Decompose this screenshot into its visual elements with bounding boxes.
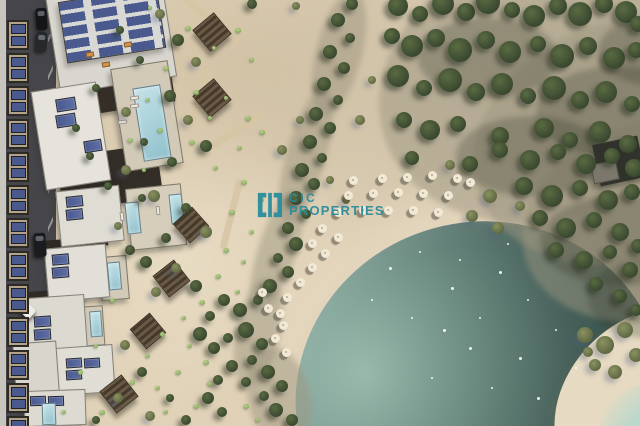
umbrella [279,321,288,330]
tree [286,414,298,426]
tree [556,218,576,238]
sparkle [479,317,481,319]
path [207,112,263,151]
tree [121,107,131,117]
tree [181,415,191,425]
tree [420,120,440,140]
tree [116,26,124,34]
tree [200,140,212,152]
aerial-resort-render: CIC PROPERTIES [0,0,640,426]
umbrella [334,233,343,242]
shrub [128,138,133,143]
shrub [260,130,265,135]
tree [625,159,640,177]
shrub [200,300,205,305]
panel [34,328,52,340]
tree [541,185,563,207]
shrub [212,46,216,50]
tree [292,2,300,10]
umbrella [321,249,330,258]
tree [164,90,176,102]
tree [140,256,152,268]
umbrella [419,189,428,198]
tree [276,380,288,392]
tree [86,152,94,160]
shrub [176,370,181,375]
tree [113,393,123,403]
tree [589,121,611,143]
sparkle [431,377,433,379]
thunit [7,383,29,413]
thunit [7,53,29,83]
tree [438,68,462,92]
shrub [216,274,221,279]
shrub [130,380,135,385]
tree [387,65,409,87]
thunit [7,185,29,215]
tree [483,189,497,203]
umbrella [384,206,393,215]
tree [586,212,602,228]
shrub [100,410,105,415]
tree [303,135,317,149]
shrub [146,354,150,358]
umbrella [271,334,280,343]
tree [598,190,618,210]
umbrella [466,178,475,187]
tree [491,73,513,95]
tree [140,138,148,146]
tree [523,5,545,27]
tree [92,84,100,92]
shrub [204,360,209,365]
car [35,32,47,53]
tree [253,295,263,305]
tree [583,347,593,357]
tree [289,237,303,251]
tree [273,253,283,263]
tree [137,367,147,377]
tree [448,38,472,62]
tree [629,348,640,362]
thunit [7,86,29,116]
sparkle [469,347,472,350]
tree [191,57,201,67]
tree [630,16,640,32]
tree [457,3,475,21]
thunit [7,119,29,149]
thunit [7,416,29,426]
tree [295,163,309,177]
sparkle [575,367,577,369]
tree [145,411,155,421]
tree [208,342,220,354]
panel [52,266,70,278]
tree [450,116,466,132]
shrub [214,166,218,170]
tree [405,151,419,165]
sparkle [499,271,502,274]
shrub [146,98,150,102]
tree [467,83,485,101]
sparkle [537,397,540,400]
shrub [256,418,260,422]
umbrella [308,239,317,248]
watermark: CIC PROPERTIES [256,191,385,219]
umbrella [403,173,412,182]
shrub [208,382,212,386]
tree [151,287,161,297]
tree [550,144,566,160]
tree [401,35,423,57]
umbrella [282,348,291,357]
umbrella [453,174,462,183]
tree [499,41,521,63]
tree [241,377,251,387]
tree [445,160,455,170]
shrub [94,344,98,348]
shrub [78,370,83,375]
tree [477,31,495,49]
tree [515,177,533,195]
tree [466,210,478,222]
tree [277,145,287,155]
tree [138,194,146,202]
tree [596,336,614,354]
tree [193,327,207,341]
pool [42,403,57,425]
tree [136,56,144,64]
shrub [186,26,191,31]
tree [520,150,540,170]
thunit [7,251,29,281]
tree [223,333,233,343]
umbrella [264,304,273,313]
tree [532,210,548,226]
tree [324,122,336,134]
shrub [156,386,160,390]
tree [576,154,596,174]
tree [604,148,620,164]
tree [562,132,578,148]
shrub [238,146,242,150]
tree [238,322,254,338]
tree [323,45,337,59]
tree [575,251,593,269]
panel [65,208,83,221]
shrub [242,180,247,185]
shrub [250,230,254,234]
tree [282,266,294,278]
tree [388,0,408,16]
tree [595,81,617,103]
panel [52,253,70,265]
sparkle [443,329,446,332]
sparkle [411,317,413,319]
tree [611,223,629,241]
sparkle [507,243,509,245]
shrub [224,96,228,100]
umbrella [283,293,292,302]
tree [384,28,400,44]
tree [355,115,365,125]
tree [577,327,593,343]
tree [259,391,269,401]
tree [200,226,212,238]
tree [218,294,230,306]
shrub [250,58,254,62]
tree [548,242,564,258]
umbrella [434,208,443,217]
tree [617,322,633,338]
thunit [7,284,29,314]
tree [92,416,100,424]
sparkle [389,267,392,270]
tree [171,263,181,273]
thunit [7,317,29,347]
tree [571,91,589,109]
umbrella [409,206,418,215]
shrub [188,344,192,348]
tree [256,338,268,350]
tree [308,178,320,190]
shrub [110,298,115,303]
tree [492,142,508,158]
sparkle [451,287,454,290]
tree [368,76,376,84]
sparkle [555,329,557,331]
thunit [7,350,29,380]
tree [181,203,191,213]
tree [396,112,412,128]
shrub [148,6,152,10]
shrub [224,248,229,253]
thunit [7,20,29,50]
umbrella [394,188,403,197]
umbrella [308,263,317,272]
sparkle [527,299,529,301]
sparkle [459,259,461,261]
tree [338,62,350,74]
panel [84,357,101,368]
tree [492,222,504,234]
thunit [7,152,29,182]
tree [104,182,112,190]
shrub [62,410,66,414]
tree [309,107,323,121]
umbrella [318,224,327,233]
tree [572,180,588,196]
tree [317,153,327,163]
tree [608,365,622,379]
tree [121,165,131,175]
tree [326,176,334,184]
wl [120,212,125,221]
tree [296,116,304,124]
tree [282,222,294,234]
car [35,8,48,31]
tree [520,88,536,104]
tree [190,280,202,292]
tree [125,245,135,255]
tree [172,34,184,46]
tree [589,277,603,291]
shrub [242,260,246,264]
tree [622,262,638,278]
tree [155,9,165,19]
tree [412,6,428,22]
shrub [164,66,169,71]
panel [65,195,83,208]
shrub [182,316,186,320]
tree [624,96,640,112]
tree [72,124,80,132]
watermark-line2: PROPERTIES [289,204,385,218]
umbrella [428,171,437,180]
shrub [164,410,168,414]
shrub [158,128,163,133]
tree [427,29,445,47]
shrub [190,140,195,145]
umbrella [378,174,387,183]
shrub [160,332,165,337]
shrub [194,404,199,409]
pool [107,261,122,290]
tree [217,407,227,417]
tree [579,37,597,55]
umbrella [276,309,285,318]
tree [247,355,257,365]
shrub [208,116,212,120]
sparkle [371,299,373,301]
tree [619,135,637,153]
tree [331,13,345,27]
tree [613,289,627,303]
tree [183,115,193,125]
tree [269,403,283,417]
tree [213,375,223,385]
tree [628,42,640,58]
shrub [194,90,199,95]
shrub [142,168,146,172]
sparkle [491,387,493,389]
tree [167,157,177,167]
umbrella [349,176,358,185]
tree [462,156,478,172]
tree [317,77,331,91]
shrub [236,28,241,33]
tree [161,233,171,243]
pool [89,311,103,338]
tree [226,360,238,372]
tree [603,47,625,69]
shrub [244,404,249,409]
tree [416,80,432,96]
tree [603,245,617,259]
panel [66,357,83,368]
tree [148,190,160,202]
watermark-text: CIC PROPERTIES [289,192,385,218]
panel [34,315,52,327]
tree [333,95,343,105]
thunit [7,218,29,248]
tree [202,392,214,404]
shrub [236,290,240,294]
tree [120,340,130,350]
pergola [130,313,167,350]
shrub [246,116,251,121]
tree [515,201,525,211]
wl [156,206,161,215]
tree [233,303,247,317]
tree [345,33,355,43]
tree [568,2,592,26]
tree [624,184,640,200]
tree [205,311,215,321]
cic-properties-logo-icon [256,191,284,219]
sparkle [519,357,522,360]
tree [550,44,574,68]
umbrella [444,191,453,200]
car [33,233,47,258]
tree [589,359,601,371]
tree [542,76,566,100]
umbrella [296,278,305,287]
umbrella [258,288,267,297]
tree [504,2,520,18]
tree [261,365,275,379]
tree [630,304,640,316]
shrub [230,210,235,215]
tree [530,36,546,52]
sparkle [419,251,421,253]
tree [166,394,174,402]
tree [247,0,257,9]
tree [114,222,122,230]
tree [534,118,554,138]
tree [631,239,640,253]
